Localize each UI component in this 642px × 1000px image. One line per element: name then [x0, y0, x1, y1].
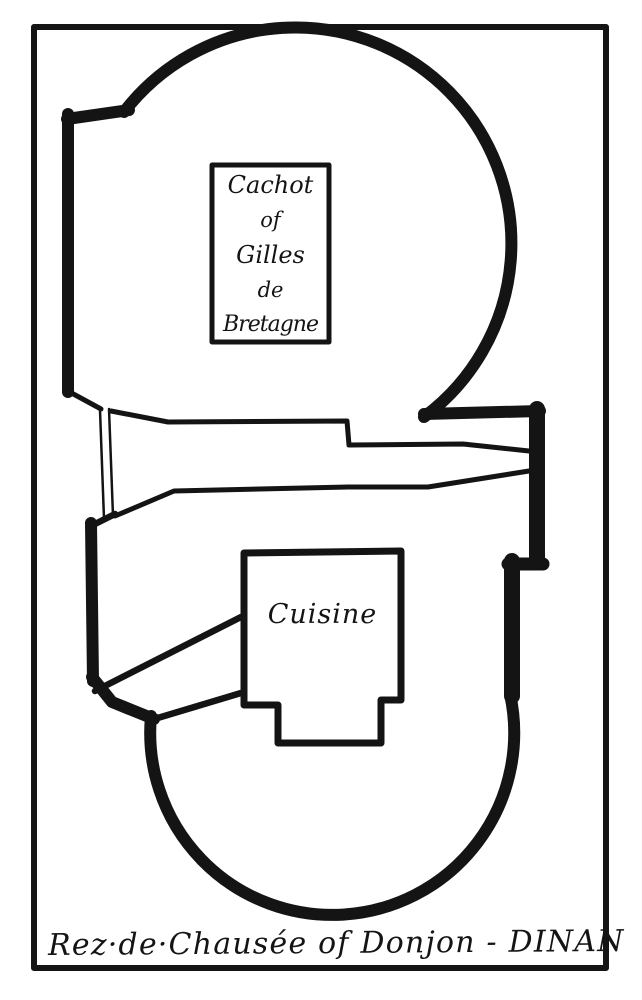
frame-border [34, 27, 606, 968]
west-wall-lower [91, 523, 93, 681]
floor-plan-page: Cachot of Gilles de Bretagne Cuisine Rez… [0, 0, 642, 1000]
cachot-label-line: de [258, 278, 284, 302]
cachot-label-line: of [260, 208, 280, 232]
cuisine-room-outline [244, 551, 401, 743]
corridor-lower-wall-line [115, 471, 529, 516]
west-passage-line-outer [100, 410, 104, 519]
cuisine-lower-diagonal-wall [151, 693, 241, 720]
floor-plan-drawing [0, 0, 642, 1000]
cuisine-upper-diagonal-wall [95, 617, 241, 691]
cachot-label-line: Cachot [228, 172, 314, 198]
east-wall-top [424, 411, 540, 414]
cachot-label: Cachot of Gilles de Bretagne [213, 172, 328, 338]
cachot-label-line: Bretagne [223, 312, 318, 338]
bottom-tower-wall-arc [150, 694, 514, 915]
west-passage-line-inner [109, 409, 113, 516]
west-passage-top-diagonal [66, 390, 101, 409]
cuisine-label: Cuisine [246, 599, 399, 630]
caption: Rez·de·Chausée of Donjon - DINAN [48, 924, 608, 963]
bottom-tower-northwest-wall [92, 677, 154, 719]
cachot-label-line: Gilles [236, 242, 305, 268]
top-tower-northwest-wall [67, 110, 129, 119]
